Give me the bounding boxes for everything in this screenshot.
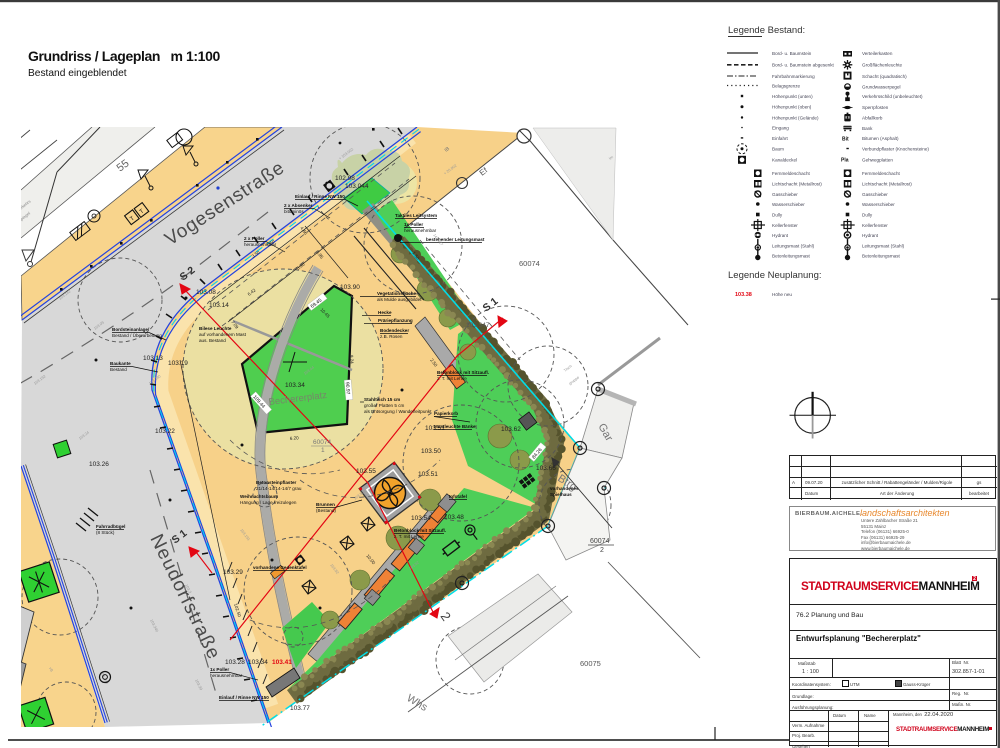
svg-text:Abfallkorb: Abfallkorb: [862, 115, 883, 120]
svg-text:Hydrant: Hydrant: [772, 233, 789, 238]
svg-text:Verbundpflaster (Knochensteine: Verbundpflaster (Knochensteine): [862, 147, 929, 152]
svg-text:Eingang: Eingang: [772, 125, 789, 130]
svg-text:Höhenpunkt (Gelände): Höhenpunkt (Gelände): [772, 115, 819, 120]
svg-text:Kanaldeckel: Kanaldeckel: [772, 157, 797, 162]
svg-text:Gasschieber: Gasschieber: [772, 192, 798, 197]
svg-text:Grundwasserpegel: Grundwasserpegel: [862, 84, 901, 89]
svg-text:Hydrant: Hydrant: [862, 233, 879, 238]
svg-text:Lichtschacht (Metallrost): Lichtschacht (Metallrost): [772, 181, 822, 186]
svg-text:Bord- u. Baumstein abgesenkt: Bord- u. Baumstein abgesenkt: [772, 63, 835, 68]
svg-text:Fahrbahnmarkierung: Fahrbahnmarkierung: [772, 74, 815, 79]
svg-text:Pla: Pla: [841, 157, 849, 163]
svg-text:Verkehrsschild (unbeleuchtet): Verkehrsschild (unbeleuchtet): [862, 94, 923, 99]
svg-text:Höhenpunkt (oben): Höhenpunkt (oben): [772, 105, 812, 110]
svg-text:Kellerfenster: Kellerfenster: [772, 223, 798, 228]
svg-text:Bitumen (Asphalt): Bitumen (Asphalt): [862, 136, 899, 141]
svg-text:Verteilerkasten: Verteilerkasten: [862, 51, 893, 56]
svg-text:Bit: Bit: [842, 137, 849, 143]
svg-text:Belagsgrenze: Belagsgrenze: [772, 83, 801, 88]
svg-text:Baum: Baum: [772, 147, 784, 152]
svg-text:Bank: Bank: [862, 126, 873, 131]
svg-text:Sperrpfosten: Sperrpfosten: [862, 105, 889, 110]
svg-text:Fernmeldeschacht: Fernmeldeschacht: [862, 171, 901, 176]
svg-text:Dully: Dully: [862, 212, 873, 217]
svg-text:Höhe neu: Höhe neu: [772, 292, 792, 297]
svg-text:Leitungsmast (Stahl): Leitungsmast (Stahl): [862, 243, 905, 248]
svg-text:Kellerfenster: Kellerfenster: [862, 223, 888, 228]
svg-text:Leitungsmast (Stahl): Leitungsmast (Stahl): [772, 243, 815, 248]
svg-text:Betonleitungsmast: Betonleitungsmast: [862, 253, 901, 258]
svg-text:Lichtschacht (Metallrost): Lichtschacht (Metallrost): [862, 181, 912, 186]
svg-text:Wasserschieber: Wasserschieber: [862, 202, 895, 207]
svg-text:Großflächenleuchte: Großflächenleuchte: [862, 63, 903, 68]
svg-text:Wasserschieber: Wasserschieber: [772, 202, 805, 207]
svg-text:Fernmeldeschacht: Fernmeldeschacht: [772, 171, 811, 176]
svg-text:Legende Neuplanung:: Legende Neuplanung:: [728, 270, 822, 281]
svg-text:Schacht (quadratisch): Schacht (quadratisch): [862, 74, 907, 79]
svg-text:Höhenpunkt (unten): Höhenpunkt (unten): [772, 94, 813, 99]
svg-text:Einfahrt: Einfahrt: [772, 136, 789, 141]
svg-text:Gehwegplatten: Gehwegplatten: [862, 157, 893, 162]
svg-text:Betonleitungsmast: Betonleitungsmast: [772, 253, 811, 258]
svg-text:Gasschieber: Gasschieber: [862, 192, 888, 197]
svg-text:103.38: 103.38: [735, 292, 752, 298]
svg-text:Legende Bestand:: Legende Bestand:: [728, 25, 805, 36]
svg-text:Dully: Dully: [772, 212, 783, 217]
svg-text:Bord- u. Baumstein: Bord- u. Baumstein: [772, 51, 812, 56]
